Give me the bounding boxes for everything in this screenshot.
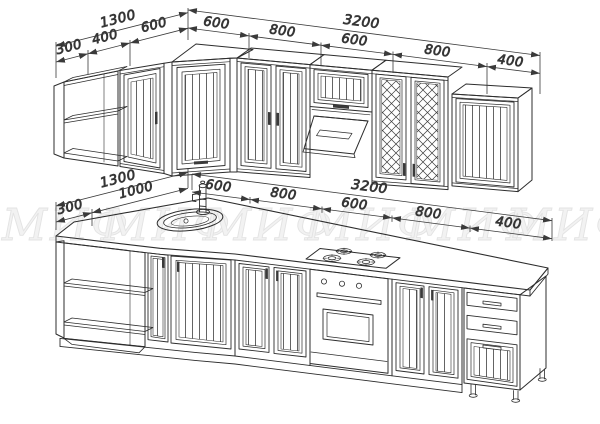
upper-end-cabinet bbox=[452, 84, 532, 192]
range-hood bbox=[303, 116, 368, 158]
door-handle bbox=[403, 163, 405, 176]
dim-upper-left-seg-1: 400 bbox=[91, 27, 120, 48]
base-corner-sink-cabinet bbox=[148, 253, 231, 349]
drawer-handle bbox=[483, 324, 501, 329]
drawer-unit bbox=[464, 276, 546, 402]
base-double-door-cabinet-right bbox=[392, 279, 462, 384]
dim-upper-right-seg-3: 800 bbox=[423, 42, 451, 60]
upper-open-corner-shelf bbox=[54, 67, 127, 167]
oven-knob bbox=[339, 281, 344, 286]
gas-hob bbox=[306, 248, 400, 268]
door-handle bbox=[421, 287, 423, 298]
door-handle bbox=[266, 268, 268, 279]
door-handle bbox=[268, 112, 270, 125]
kitchen-drawing: МИФ МИФ МИФ МИФ МИФ МИФ bbox=[0, 0, 600, 424]
dim-upper-right-total: 3200 bbox=[342, 12, 380, 33]
door-handle bbox=[194, 161, 208, 165]
door-handle bbox=[162, 258, 164, 269]
oven-knob bbox=[356, 283, 361, 288]
door-handle bbox=[177, 262, 179, 273]
oven bbox=[310, 269, 388, 373]
dim-lower-right-total: 3200 bbox=[350, 177, 388, 198]
dim-upper-right-seg-2: 600 bbox=[340, 31, 368, 49]
upper-corner-cabinet bbox=[164, 44, 253, 176]
dim-upper-right-seg-1: 800 bbox=[268, 22, 296, 40]
door-handle bbox=[277, 113, 279, 126]
dim-upper-left-seg-2: 600 bbox=[140, 15, 169, 36]
dim-lower-right-seg-0: 600 bbox=[204, 177, 232, 195]
upper-lattice-cabinet bbox=[372, 60, 462, 189]
dim-upper-left-total: 1300 bbox=[98, 7, 137, 31]
base-double-door-cabinet-left bbox=[235, 260, 310, 366]
door-handle bbox=[155, 112, 158, 125]
drawer-handle bbox=[483, 301, 501, 306]
door-handle bbox=[276, 271, 278, 282]
kitchen-drawing-page: МИФ МИФ МИФ МИФ МИФ МИФ bbox=[0, 0, 600, 424]
oven-window bbox=[323, 309, 373, 345]
door-handle bbox=[431, 290, 433, 301]
oven-knob bbox=[321, 279, 326, 284]
base-open-corner-shelf bbox=[56, 241, 153, 353]
door-handle bbox=[413, 164, 415, 177]
dim-upper-right-seg-0: 600 bbox=[202, 14, 230, 32]
oven-handle bbox=[317, 293, 381, 305]
upper-double-door-cabinet bbox=[237, 48, 324, 178]
dim-upper-left-seg-0: 300 bbox=[55, 37, 84, 58]
dim-upper-right-seg-4: 400 bbox=[496, 52, 524, 70]
